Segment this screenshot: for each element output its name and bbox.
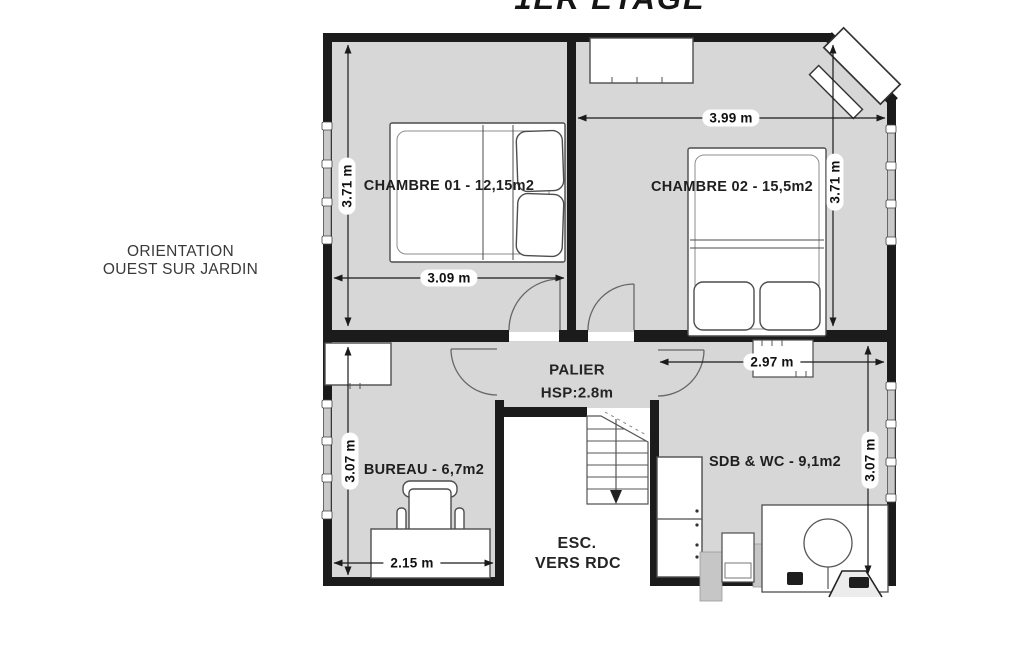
dim-chambre01-width: 3.09 m xyxy=(420,270,477,287)
cabinet-bureau xyxy=(325,343,391,389)
room-label-chambre02: CHAMBRE 02 - 15,5m2 xyxy=(651,179,813,195)
room-label-sdb: SDB & WC - 9,1m2 xyxy=(709,454,841,470)
bed-chambre02 xyxy=(688,148,826,336)
dim-chambre02-height: 3.71 m xyxy=(827,153,844,210)
room-label-chambre01: CHAMBRE 01 - 12,15m2 xyxy=(364,178,534,194)
window-sdb xyxy=(888,385,896,502)
floor-plan-drawing xyxy=(0,0,1025,650)
orientation-note: ORIENTATION OUEST SUR JARDIN xyxy=(78,243,283,279)
dim-sdb-height: 3.07 m xyxy=(862,431,879,488)
window-chambre01 xyxy=(324,125,332,243)
page-title: 1ER ÉTAGE xyxy=(200,0,1020,14)
pillow xyxy=(694,282,754,330)
pillow xyxy=(760,282,820,330)
wall-top xyxy=(323,33,832,42)
room-label-palier: PALIER xyxy=(549,362,605,379)
pillow xyxy=(516,193,564,257)
wall-palier-bottom xyxy=(503,407,587,417)
cabinet-sdb xyxy=(657,457,702,577)
sink-sdb xyxy=(804,519,852,567)
wall-divider-bedrooms xyxy=(567,33,576,342)
wardrobe-chambre02 xyxy=(590,38,693,83)
dim-chambre01-height: 3.71 m xyxy=(339,157,356,214)
faucet xyxy=(787,572,803,585)
toilet-sdb xyxy=(722,533,754,582)
window-chambre02 xyxy=(888,128,896,244)
room-label-bureau: BUREAU - 6,7m2 xyxy=(364,462,484,478)
vanity-sdb xyxy=(762,505,888,597)
wall-mid-center xyxy=(559,330,588,342)
orientation-line2: OUEST SUR JARDIN xyxy=(78,261,283,279)
dim-bureau-height: 3.07 m xyxy=(342,432,359,489)
wall-bureau-right xyxy=(495,400,504,586)
page-title-clip: 1ER ÉTAGE xyxy=(200,0,1020,14)
dim-sdb-width: 2.97 m xyxy=(743,354,800,371)
orientation-line1: ORIENTATION xyxy=(78,243,283,261)
stairs-label-line2: VERS RDC xyxy=(535,555,621,573)
staircase xyxy=(587,412,648,504)
faucet xyxy=(849,577,869,588)
wall-mid-left xyxy=(331,330,509,342)
dim-bureau-width: 2.15 m xyxy=(383,555,440,572)
window-bureau xyxy=(324,403,332,518)
palier-ceiling-height: HSP:2.8m xyxy=(541,385,613,402)
dim-chambre02-width: 3.99 m xyxy=(702,110,759,127)
stairs-label-line1: ESC. xyxy=(558,535,597,553)
partition-sdb xyxy=(700,552,722,601)
floor-plan: 1ER ÉTAGE ORIENTATION OUEST SUR JARDIN C… xyxy=(0,0,1025,650)
